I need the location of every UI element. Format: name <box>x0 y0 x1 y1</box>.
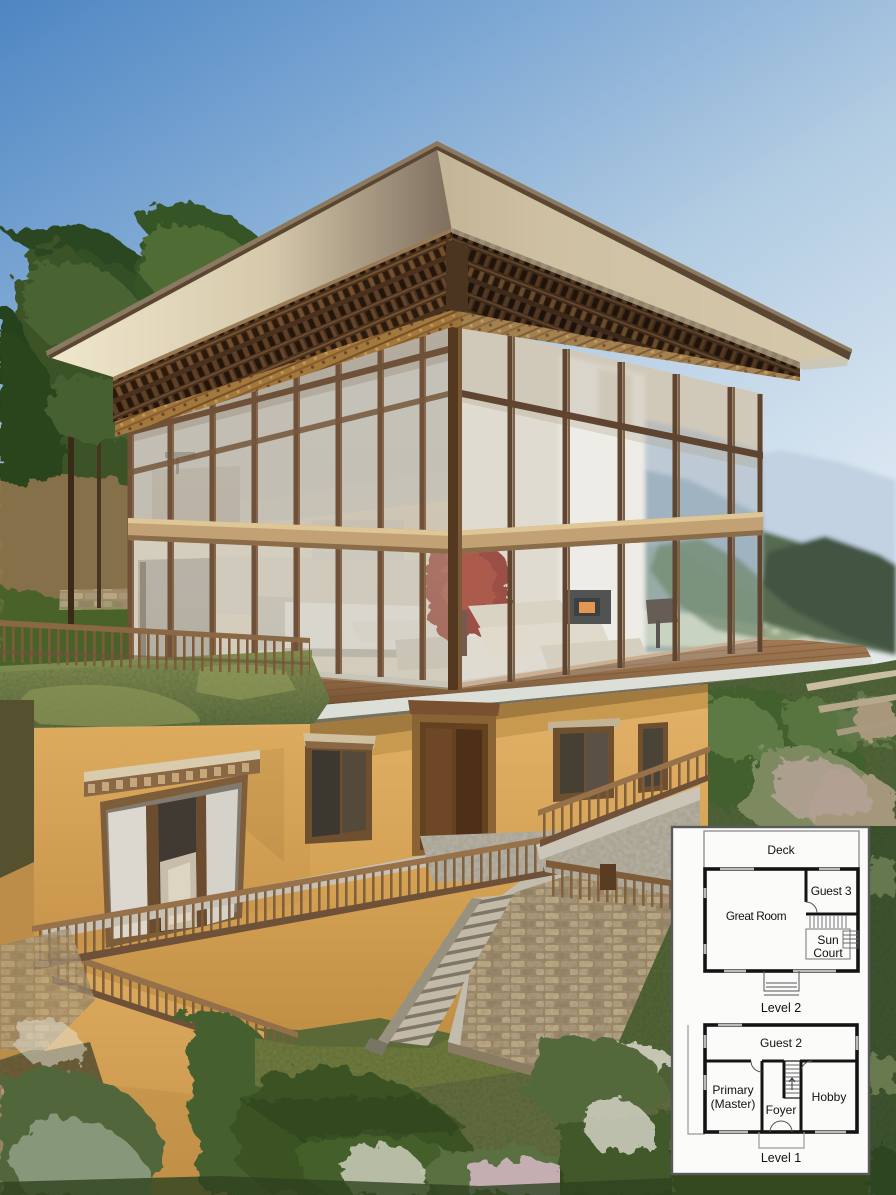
svg-text:Primary: Primary <box>712 1083 753 1097</box>
svg-text:Sun: Sun <box>817 933 838 947</box>
svg-text:Hobby: Hobby <box>812 1090 847 1104</box>
svg-text:Guest 2: Guest 2 <box>760 1036 802 1050</box>
svg-text:Foyer: Foyer <box>766 1103 797 1117</box>
svg-text:Guest 3: Guest 3 <box>811 884 852 898</box>
svg-text:Deck: Deck <box>767 843 795 857</box>
svg-text:Level 2: Level 2 <box>761 1001 801 1015</box>
svg-text:Level 1: Level 1 <box>761 1151 801 1165</box>
svg-text:Court: Court <box>813 946 843 960</box>
svg-text:(Master): (Master) <box>711 1097 756 1111</box>
svg-text:Great Room: Great Room <box>726 909 787 923</box>
